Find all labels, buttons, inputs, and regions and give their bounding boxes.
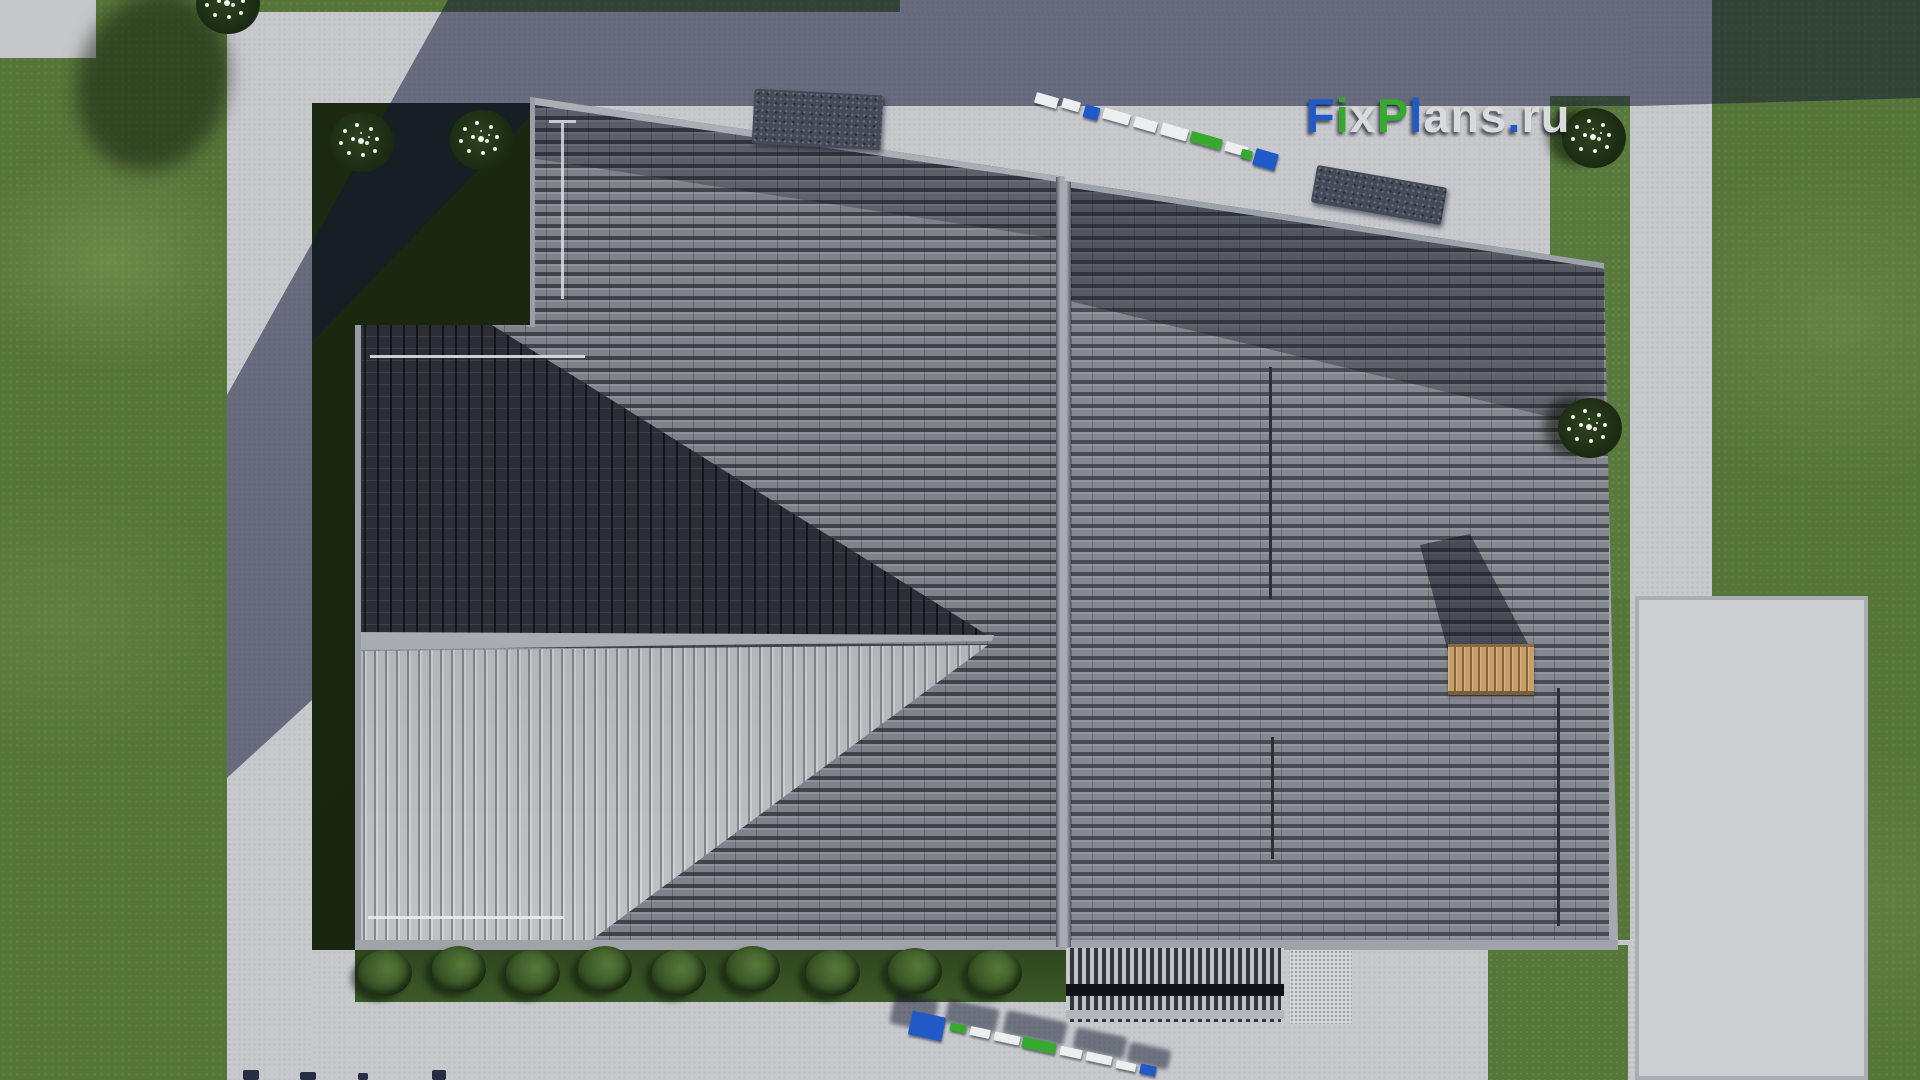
paving-corner-top-left	[0, 0, 96, 58]
watermark-edge-letter	[300, 1072, 316, 1080]
hedge-bush	[806, 950, 860, 996]
logo-letter: l	[1409, 89, 1423, 142]
logo-letter: u	[1541, 89, 1571, 142]
logo-letter: x	[1350, 89, 1377, 142]
roof-ladder	[1271, 737, 1274, 859]
hedge-bush	[578, 946, 632, 992]
roof-ladder	[1557, 688, 1560, 926]
hedge-bush	[652, 950, 706, 996]
hedge-bush	[888, 948, 942, 994]
hedge-bush	[726, 946, 780, 992]
flower-bush-partial	[196, 0, 260, 34]
patio-slab-right	[1635, 596, 1868, 1080]
flower-bush	[1558, 398, 1622, 458]
lightning-rod	[561, 123, 564, 299]
logo-letter: .	[1507, 89, 1521, 142]
bush-flowers	[1590, 134, 1596, 140]
paving-top-edge	[900, 0, 1712, 14]
stone-bench	[752, 89, 884, 151]
bush-flowers	[1586, 424, 1592, 430]
roof-fascia-bottom	[355, 940, 1618, 951]
watermark-edge-letter	[243, 1070, 259, 1080]
lightning-rod-bar	[549, 120, 576, 123]
bush-flowers	[478, 136, 484, 142]
path-left	[227, 12, 312, 1080]
logo-letter: a	[1423, 89, 1450, 142]
hedge-bush	[506, 950, 560, 996]
grass-patch-bottom-right	[1488, 945, 1628, 1080]
chimney	[1448, 644, 1534, 695]
hedge-bush	[432, 946, 486, 992]
watermark-3d-letters-top	[1035, 95, 1285, 175]
logo-letter: r	[1521, 89, 1540, 142]
flower-bush	[450, 110, 514, 170]
logo-letter: n	[1450, 89, 1480, 142]
site-render: FixPlans.ru	[0, 0, 1920, 1080]
logo-letter: F	[1306, 89, 1336, 142]
watermark-3d-letters-bottom	[900, 1002, 1200, 1080]
roof-ladder	[1269, 367, 1272, 599]
hedge-bush	[358, 950, 412, 996]
bush-flowers	[358, 138, 364, 144]
logo-letter: s	[1480, 89, 1507, 142]
watermark-edge-letter	[432, 1070, 446, 1080]
pergola-beam	[1066, 984, 1284, 996]
flower-bush	[330, 112, 394, 172]
watermark-edge-letter	[358, 1073, 368, 1080]
fixplans-logo: FixPlans.ru	[1306, 88, 1570, 143]
snow-guard	[368, 916, 564, 919]
logo-letter: i	[1336, 89, 1350, 142]
flower-bush	[1562, 108, 1626, 168]
snow-guard	[370, 355, 585, 358]
roof-ridge-vertical	[1056, 177, 1071, 947]
gravel-patch	[1290, 950, 1352, 1024]
hedge-bush	[968, 950, 1022, 996]
logo-letter: P	[1377, 89, 1409, 142]
bush-flowers	[224, 0, 230, 6]
